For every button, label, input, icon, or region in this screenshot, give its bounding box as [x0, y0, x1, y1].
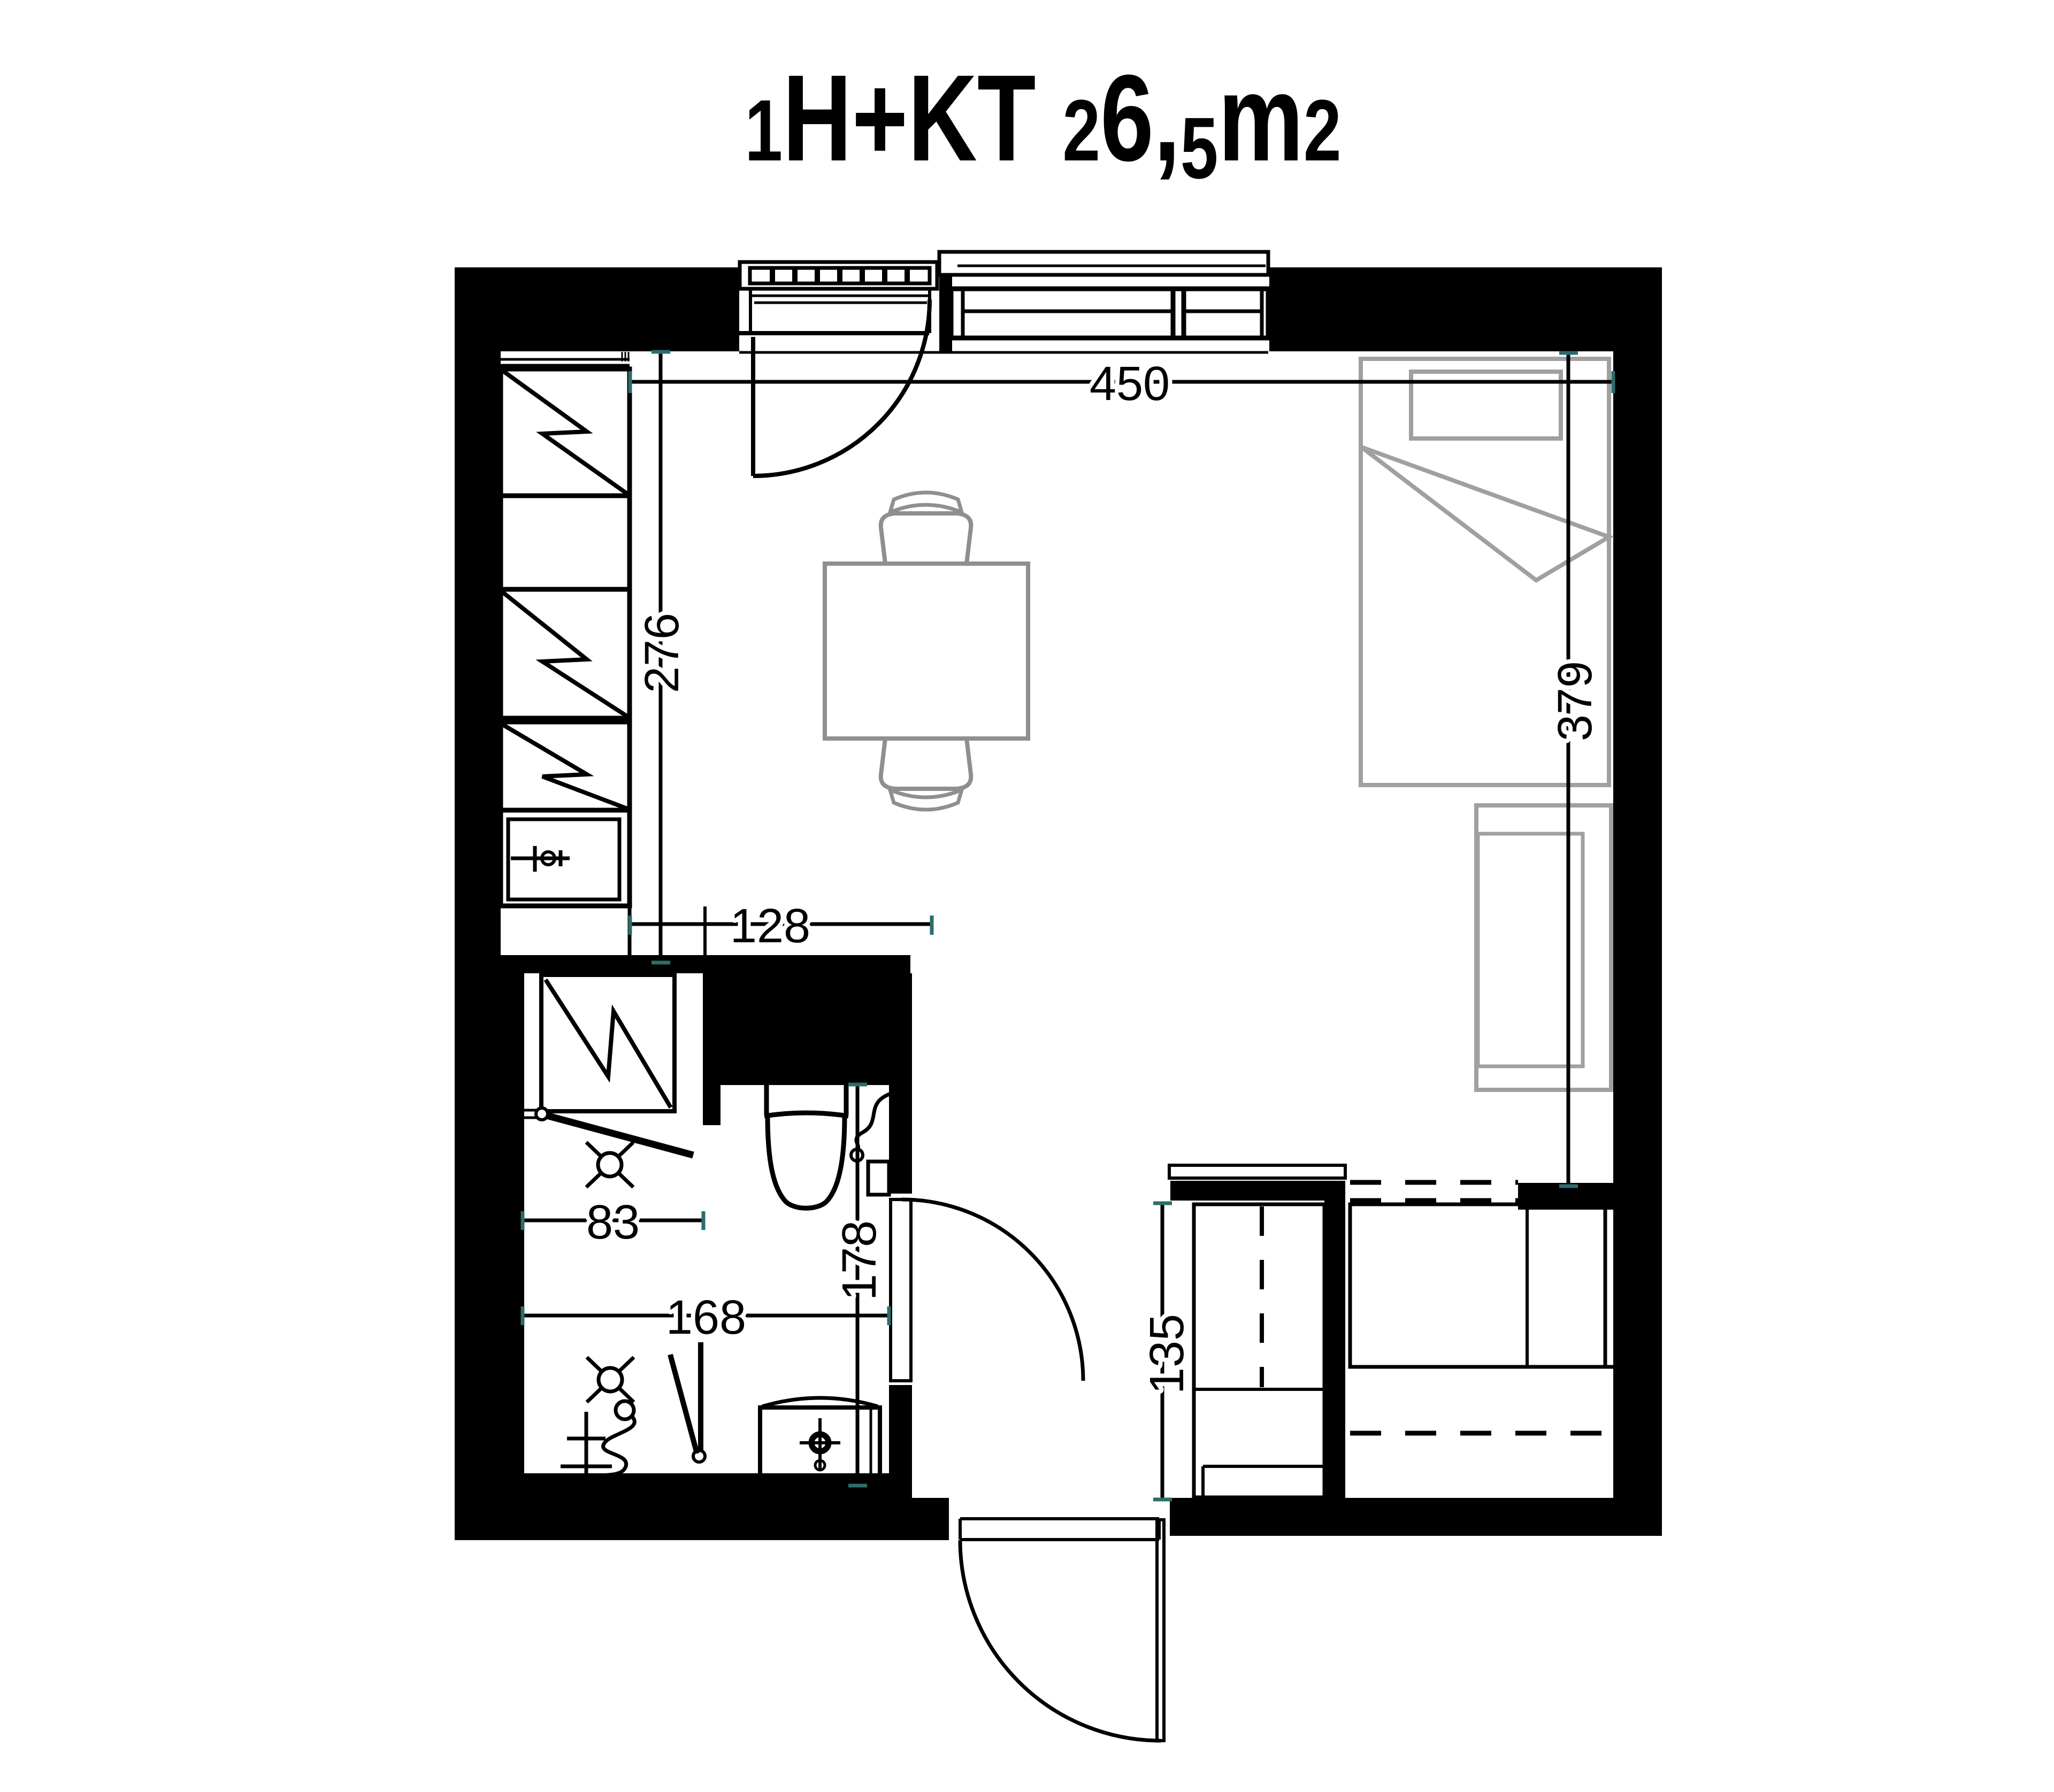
svg-text:178: 178 — [833, 1220, 886, 1301]
svg-text:128: 128 — [730, 899, 810, 953]
svg-text:1H+KT 26,5m2: 1H+KT 26,5m2 — [745, 49, 1341, 196]
svg-text:83: 83 — [586, 1196, 640, 1249]
svg-text:276: 276 — [635, 613, 689, 693]
svg-text:379: 379 — [1549, 661, 1602, 741]
svg-text:168: 168 — [666, 1291, 746, 1344]
svg-text:135: 135 — [1140, 1314, 1194, 1394]
svg-text:450: 450 — [1090, 357, 1170, 411]
